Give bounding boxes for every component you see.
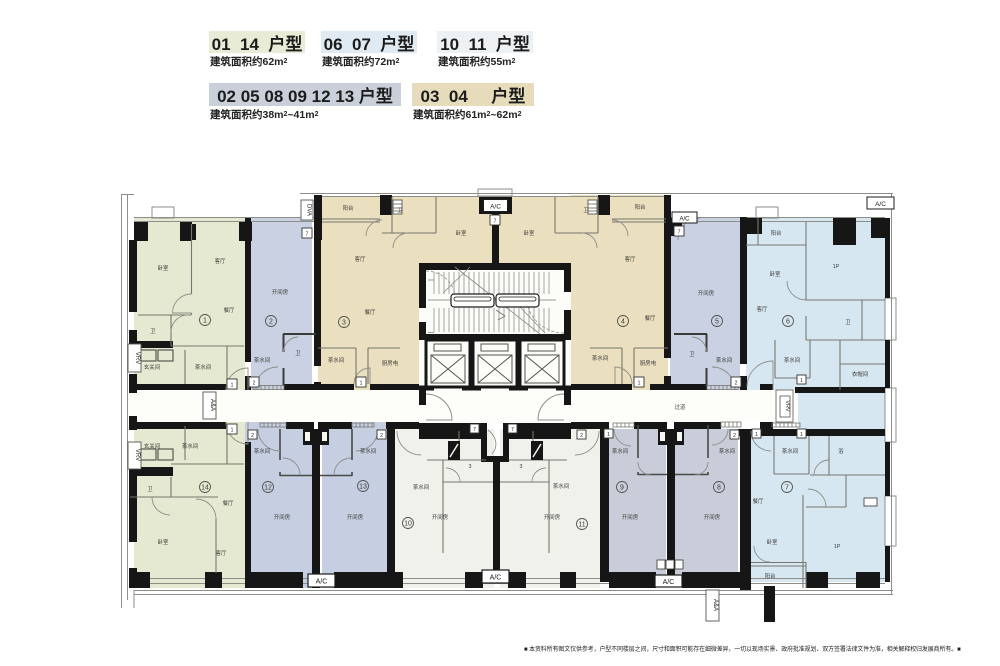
svg-text:VRV: VRV	[784, 400, 790, 412]
svg-text:A&A: A&A	[712, 599, 718, 611]
svg-text:7: 7	[511, 427, 514, 433]
svg-text:餐厅: 餐厅	[753, 497, 764, 505]
svg-text:DVA: DVA	[306, 204, 312, 216]
svg-text:3: 3	[520, 464, 523, 470]
svg-text:1: 1	[800, 432, 803, 438]
svg-text:开间房: 开间房	[698, 289, 714, 297]
svg-text:7: 7	[494, 219, 497, 225]
svg-text:卫: 卫	[295, 350, 301, 357]
svg-text:茶水间: 茶水间	[413, 483, 429, 491]
svg-text:2: 2	[251, 433, 254, 439]
svg-text:VRV: VRV	[134, 449, 140, 461]
svg-text:3: 3	[342, 320, 346, 327]
svg-text:茶水间: 茶水间	[592, 354, 608, 362]
svg-text:1: 1	[203, 318, 207, 325]
svg-text:茶水间: 茶水间	[612, 447, 628, 455]
svg-text:卫: 卫	[150, 328, 156, 335]
svg-text:10: 10	[404, 521, 412, 528]
svg-text:1: 1	[231, 383, 234, 389]
svg-text:1P: 1P	[834, 544, 841, 550]
svg-text:茶水间: 茶水间	[328, 356, 344, 364]
svg-text:卧室: 卧室	[767, 538, 778, 546]
svg-text:茶水间: 茶水间	[553, 482, 569, 490]
svg-text:阳台: 阳台	[343, 204, 354, 212]
svg-text:茶水间: 茶水间	[254, 447, 270, 455]
svg-text:卫: 卫	[583, 207, 589, 214]
svg-text:VRV: VRV	[134, 352, 140, 364]
svg-text:阳台: 阳台	[771, 229, 782, 237]
svg-text:茶水间: 茶水间	[182, 442, 198, 450]
svg-text:餐厅: 餐厅	[365, 308, 376, 316]
svg-text:2: 2	[253, 381, 256, 387]
svg-text:卧室: 卧室	[158, 264, 169, 272]
svg-text:客厅: 客厅	[757, 305, 768, 313]
svg-text:卫: 卫	[845, 319, 851, 326]
svg-text:开间房: 开间房	[704, 513, 720, 521]
svg-text:厨房电: 厨房电	[640, 359, 657, 367]
svg-text:1: 1	[360, 381, 363, 387]
svg-text:开间房: 开间房	[272, 288, 288, 296]
svg-text:2: 2	[380, 433, 383, 439]
svg-text:茶水间: 茶水间	[784, 356, 800, 364]
svg-text:A/C: A/C	[679, 217, 690, 223]
svg-text:餐厅: 餐厅	[223, 499, 234, 507]
svg-text:4: 4	[621, 319, 625, 326]
svg-text:客厅: 客厅	[355, 255, 366, 263]
svg-text:7: 7	[785, 485, 789, 492]
svg-text:客厅: 客厅	[215, 257, 226, 265]
svg-text:客厅: 客厅	[216, 549, 227, 557]
svg-text:玄关间: 玄关间	[144, 442, 160, 450]
svg-text:茶水间: 茶水间	[782, 447, 798, 455]
svg-text:7: 7	[473, 427, 476, 433]
svg-text:开间房: 开间房	[622, 513, 638, 521]
svg-text:2: 2	[735, 381, 738, 387]
svg-text:2: 2	[580, 433, 583, 439]
svg-text:A/C: A/C	[316, 579, 328, 586]
svg-text:浴: 浴	[838, 447, 844, 455]
svg-text:1P: 1P	[833, 264, 840, 270]
svg-text:开间房: 开间房	[544, 513, 560, 521]
svg-text:卧室: 卧室	[524, 229, 535, 237]
svg-text:3: 3	[469, 464, 472, 470]
svg-text:2: 2	[733, 433, 736, 439]
svg-text:客厅: 客厅	[625, 255, 636, 263]
svg-text:9: 9	[620, 485, 624, 492]
svg-text:阳台: 阳台	[765, 572, 776, 580]
svg-text:A/C: A/C	[875, 201, 886, 208]
svg-text:过道: 过道	[675, 403, 686, 411]
svg-text:茶水间: 茶水间	[716, 356, 732, 364]
svg-text:7: 7	[306, 232, 309, 238]
svg-text:A/C: A/C	[490, 575, 502, 582]
svg-text:11: 11	[578, 522, 585, 529]
svg-text:5: 5	[715, 319, 719, 326]
svg-text:1: 1	[755, 432, 758, 438]
svg-text:1: 1	[231, 428, 234, 434]
svg-text:卫: 卫	[689, 351, 695, 358]
svg-text:2: 2	[269, 319, 273, 326]
svg-text:厨房电: 厨房电	[382, 359, 399, 367]
svg-text:茶水间: 茶水间	[360, 447, 376, 455]
svg-text:A/C: A/C	[490, 204, 501, 211]
svg-text:14: 14	[201, 485, 209, 492]
svg-text:茶水间: 茶水间	[719, 447, 735, 455]
svg-text:开间房: 开间房	[432, 513, 448, 521]
svg-text:餐厅: 餐厅	[224, 306, 235, 314]
svg-text:衣帽间: 衣帽间	[852, 370, 868, 378]
svg-text:1: 1	[800, 378, 803, 384]
svg-text:1: 1	[607, 432, 610, 438]
svg-text:7: 7	[678, 230, 681, 236]
svg-text:开间房: 开间房	[347, 513, 363, 521]
svg-text:玄关间: 玄关间	[144, 363, 160, 371]
svg-text:卫: 卫	[147, 486, 153, 493]
svg-text:13: 13	[359, 484, 367, 491]
svg-text:阳台: 阳台	[635, 203, 646, 211]
svg-text:8: 8	[717, 485, 721, 492]
svg-text:12: 12	[264, 485, 272, 492]
svg-text:卧室: 卧室	[770, 270, 781, 278]
svg-text:6: 6	[786, 319, 790, 326]
svg-text:餐厅: 餐厅	[645, 314, 656, 322]
svg-text:1: 1	[638, 381, 641, 387]
svg-text:卧室: 卧室	[456, 229, 467, 237]
svg-text:茶水间: 茶水间	[254, 356, 270, 364]
svg-text:茶水间: 茶水间	[195, 363, 211, 371]
svg-text:卧室: 卧室	[158, 538, 169, 546]
svg-text:卫: 卫	[397, 207, 403, 214]
svg-text:A&A: A&A	[209, 399, 215, 411]
svg-text:开间房: 开间房	[274, 513, 290, 521]
svg-text:A/C: A/C	[663, 579, 675, 586]
